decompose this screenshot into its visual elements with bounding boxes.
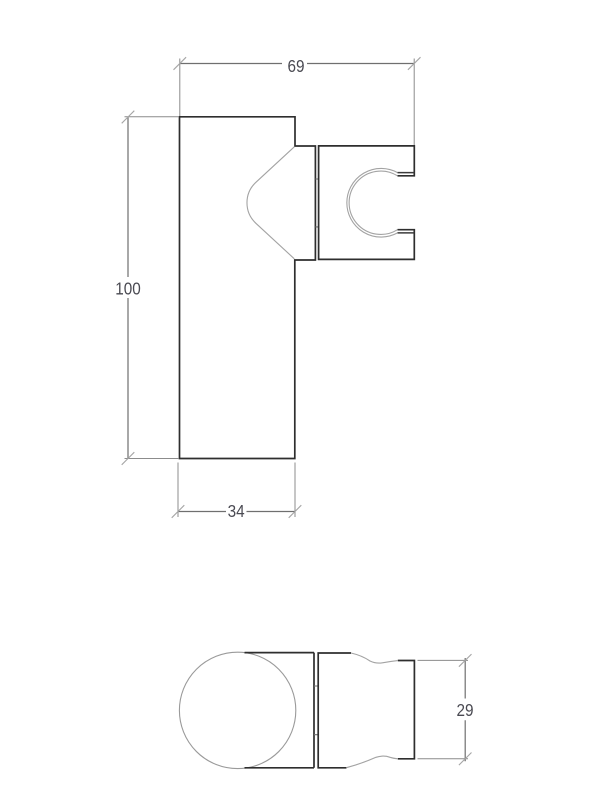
svg-text:29: 29 xyxy=(456,700,473,720)
svg-text:34: 34 xyxy=(228,501,245,521)
svg-text:100: 100 xyxy=(115,278,141,298)
svg-text:69: 69 xyxy=(287,56,304,76)
